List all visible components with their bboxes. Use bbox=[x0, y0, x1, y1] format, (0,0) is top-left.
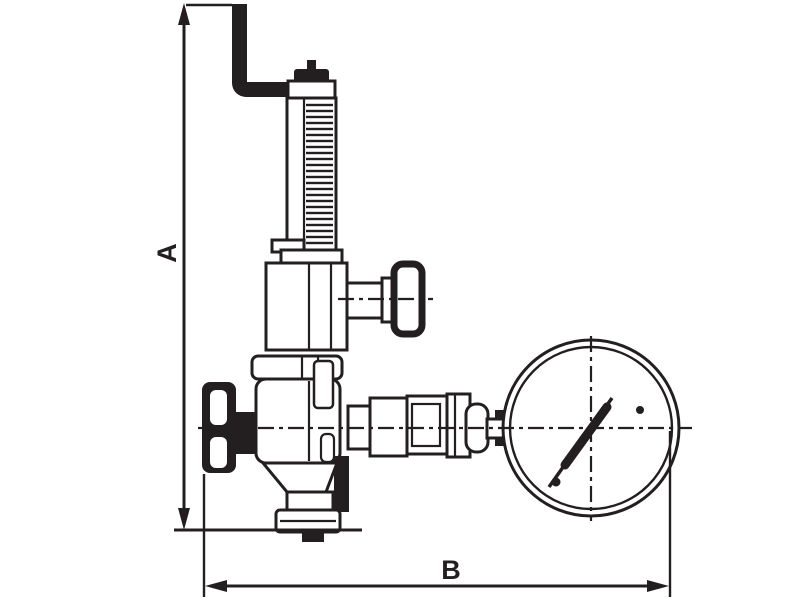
body-slot bbox=[321, 434, 334, 462]
handwheel-slot-bottom bbox=[210, 437, 227, 468]
dim-a-label: A bbox=[152, 243, 182, 263]
bonnet-shell bbox=[266, 263, 347, 350]
needle-tail-dot bbox=[552, 478, 561, 487]
outlet-skirt bbox=[263, 463, 337, 492]
handwheel-slot-top bbox=[210, 390, 227, 425]
safety-relief-pipe bbox=[232, 4, 290, 97]
dim-a-arrow-down bbox=[178, 508, 190, 530]
gauge-dial-dot bbox=[636, 406, 644, 414]
drawing-svg: A B bbox=[0, 0, 800, 598]
spring-coils bbox=[306, 101, 333, 247]
tee-handle-valve bbox=[338, 264, 433, 334]
bonnet bbox=[266, 263, 347, 350]
valve-dimension-drawing: A B bbox=[0, 0, 800, 598]
handwheel-hub bbox=[236, 412, 257, 454]
dim-b-label: B bbox=[441, 555, 461, 585]
gauge-connection bbox=[348, 394, 505, 457]
body-boss bbox=[314, 361, 333, 408]
dim-b-arrow-left bbox=[205, 580, 227, 592]
relief-pipe-elbow bbox=[232, 4, 290, 97]
outlet-neck bbox=[287, 492, 333, 510]
junction-ring bbox=[281, 250, 342, 263]
dim-b-arrow-right bbox=[647, 580, 669, 592]
outlet-stub bbox=[302, 532, 324, 542]
dim-a-arrow-up bbox=[178, 3, 190, 25]
tee-collar bbox=[347, 283, 382, 318]
cap-ring bbox=[288, 81, 335, 98]
